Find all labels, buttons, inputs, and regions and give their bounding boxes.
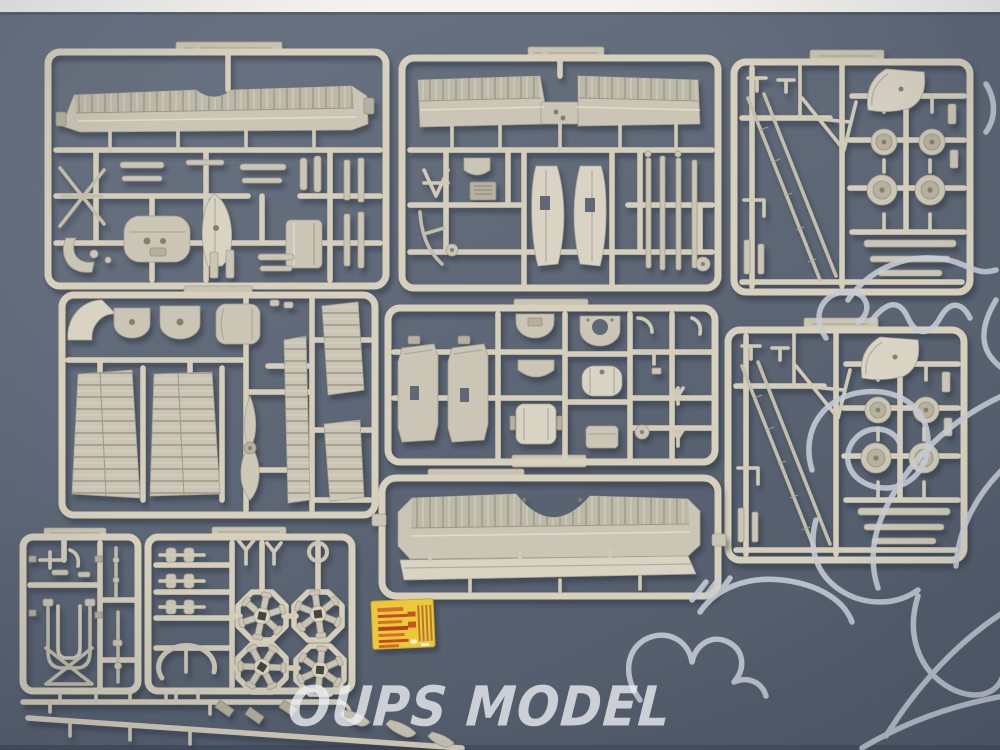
watermark-text: OUPS MODEL: [286, 675, 650, 739]
photo-scene: [0, 0, 1000, 750]
vignette: [0, 0, 1000, 750]
photo-stage: OUPS MODEL: [0, 0, 1000, 750]
